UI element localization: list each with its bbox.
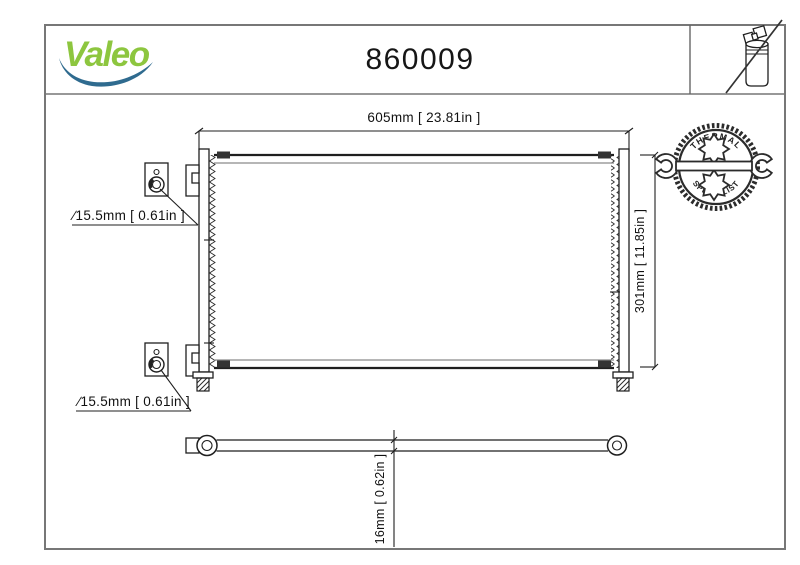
- right-mounting-foot: [613, 372, 633, 391]
- side-view-left-port: [197, 436, 217, 456]
- lower-port-dimension-label: ∕15.5mm [ 0.61in ]: [75, 394, 190, 409]
- upper-port-dimension-label: ∕15.5mm [ 0.61in ]: [70, 208, 185, 223]
- condenser-side-view: [186, 436, 627, 456]
- width-dimension-label: 605mm [ 23.81in ]: [367, 110, 480, 125]
- right-side-plate: [619, 149, 629, 372]
- badge-gear-top-icon: [699, 134, 729, 164]
- height-dimension-label: 301mm [ 11.85in ]: [633, 209, 647, 313]
- condenser-front-view: [186, 149, 633, 391]
- lower-port-callout: ∕15.5mm [ 0.61in ]: [75, 343, 191, 411]
- side-view-right-port: [608, 436, 627, 455]
- thermal-specialist-badge-icon: THERMAL SPECIALIST: [656, 126, 772, 209]
- thickness-dimension-label: 16mm [ 0.62in ]: [373, 454, 387, 545]
- header-end-block: [217, 361, 230, 368]
- brand-logo: Valeo: [59, 35, 153, 87]
- header-end-block: [598, 361, 611, 368]
- valeo-logo-text: Valeo: [64, 35, 150, 74]
- header-end-block: [217, 152, 230, 159]
- upper-mounting-bracket: [186, 165, 199, 196]
- part-number: 860009: [365, 43, 474, 76]
- drier-option-box: [690, 20, 782, 94]
- technical-drawing-page: Valeo 860009 THERMAL SPECIALIST: [0, 0, 800, 565]
- left-mounting-foot: [193, 372, 213, 391]
- height-dimension: 301mm [ 11.85in ]: [633, 152, 658, 370]
- drawing-canvas: Valeo 860009 THERMAL SPECIALIST: [0, 0, 800, 565]
- badge-gear-bottom-icon: [699, 170, 729, 200]
- right-fin-strip: [611, 155, 619, 368]
- header-end-block: [598, 152, 611, 159]
- left-side-plate: [199, 149, 209, 372]
- width-dimension: 605mm [ 23.81in ]: [195, 110, 633, 152]
- upper-port-callout: ∕15.5mm [ 0.61in ]: [70, 163, 198, 225]
- thickness-dimension: 16mm [ 0.62in ]: [373, 430, 397, 547]
- page-border: [45, 25, 785, 549]
- left-fin-strip: [209, 155, 217, 368]
